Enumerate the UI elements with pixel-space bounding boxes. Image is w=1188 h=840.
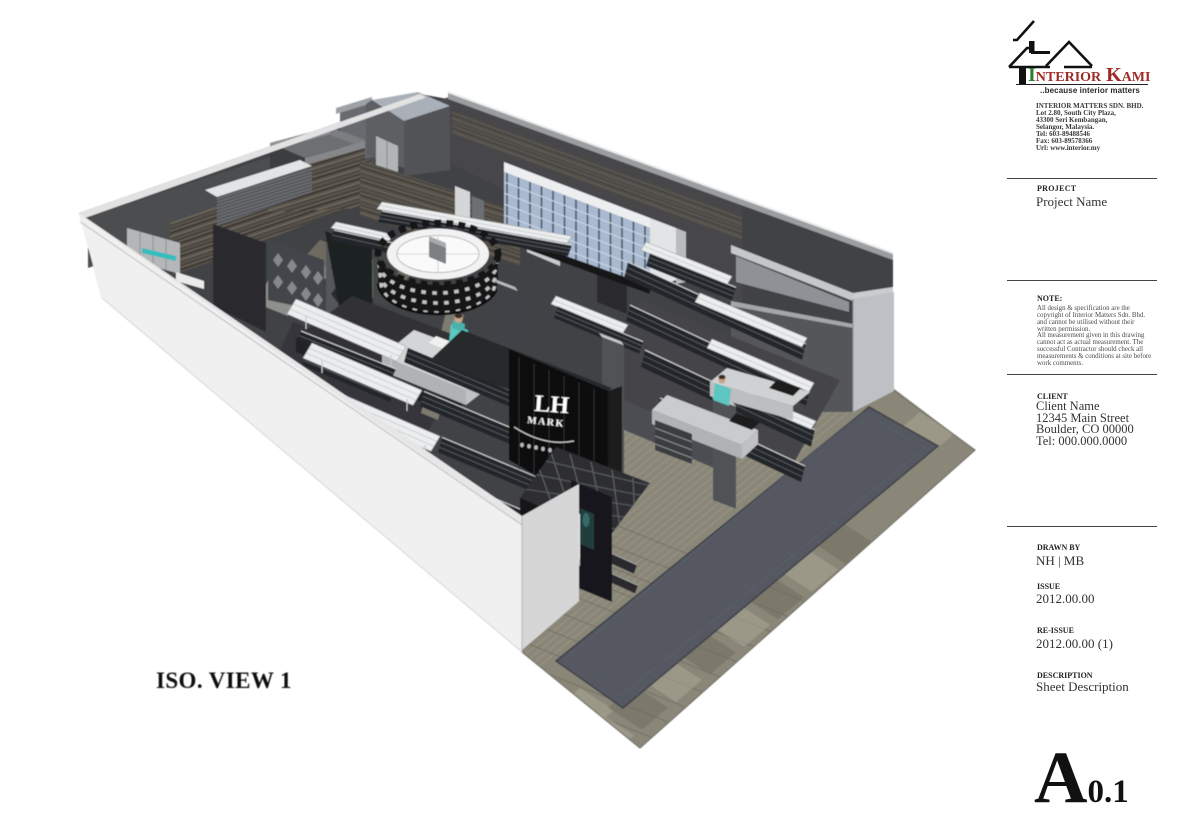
svg-text:LH: LH: [534, 391, 571, 419]
svg-text:ISO. VIEW 1: ISO. VIEW 1: [156, 668, 292, 693]
